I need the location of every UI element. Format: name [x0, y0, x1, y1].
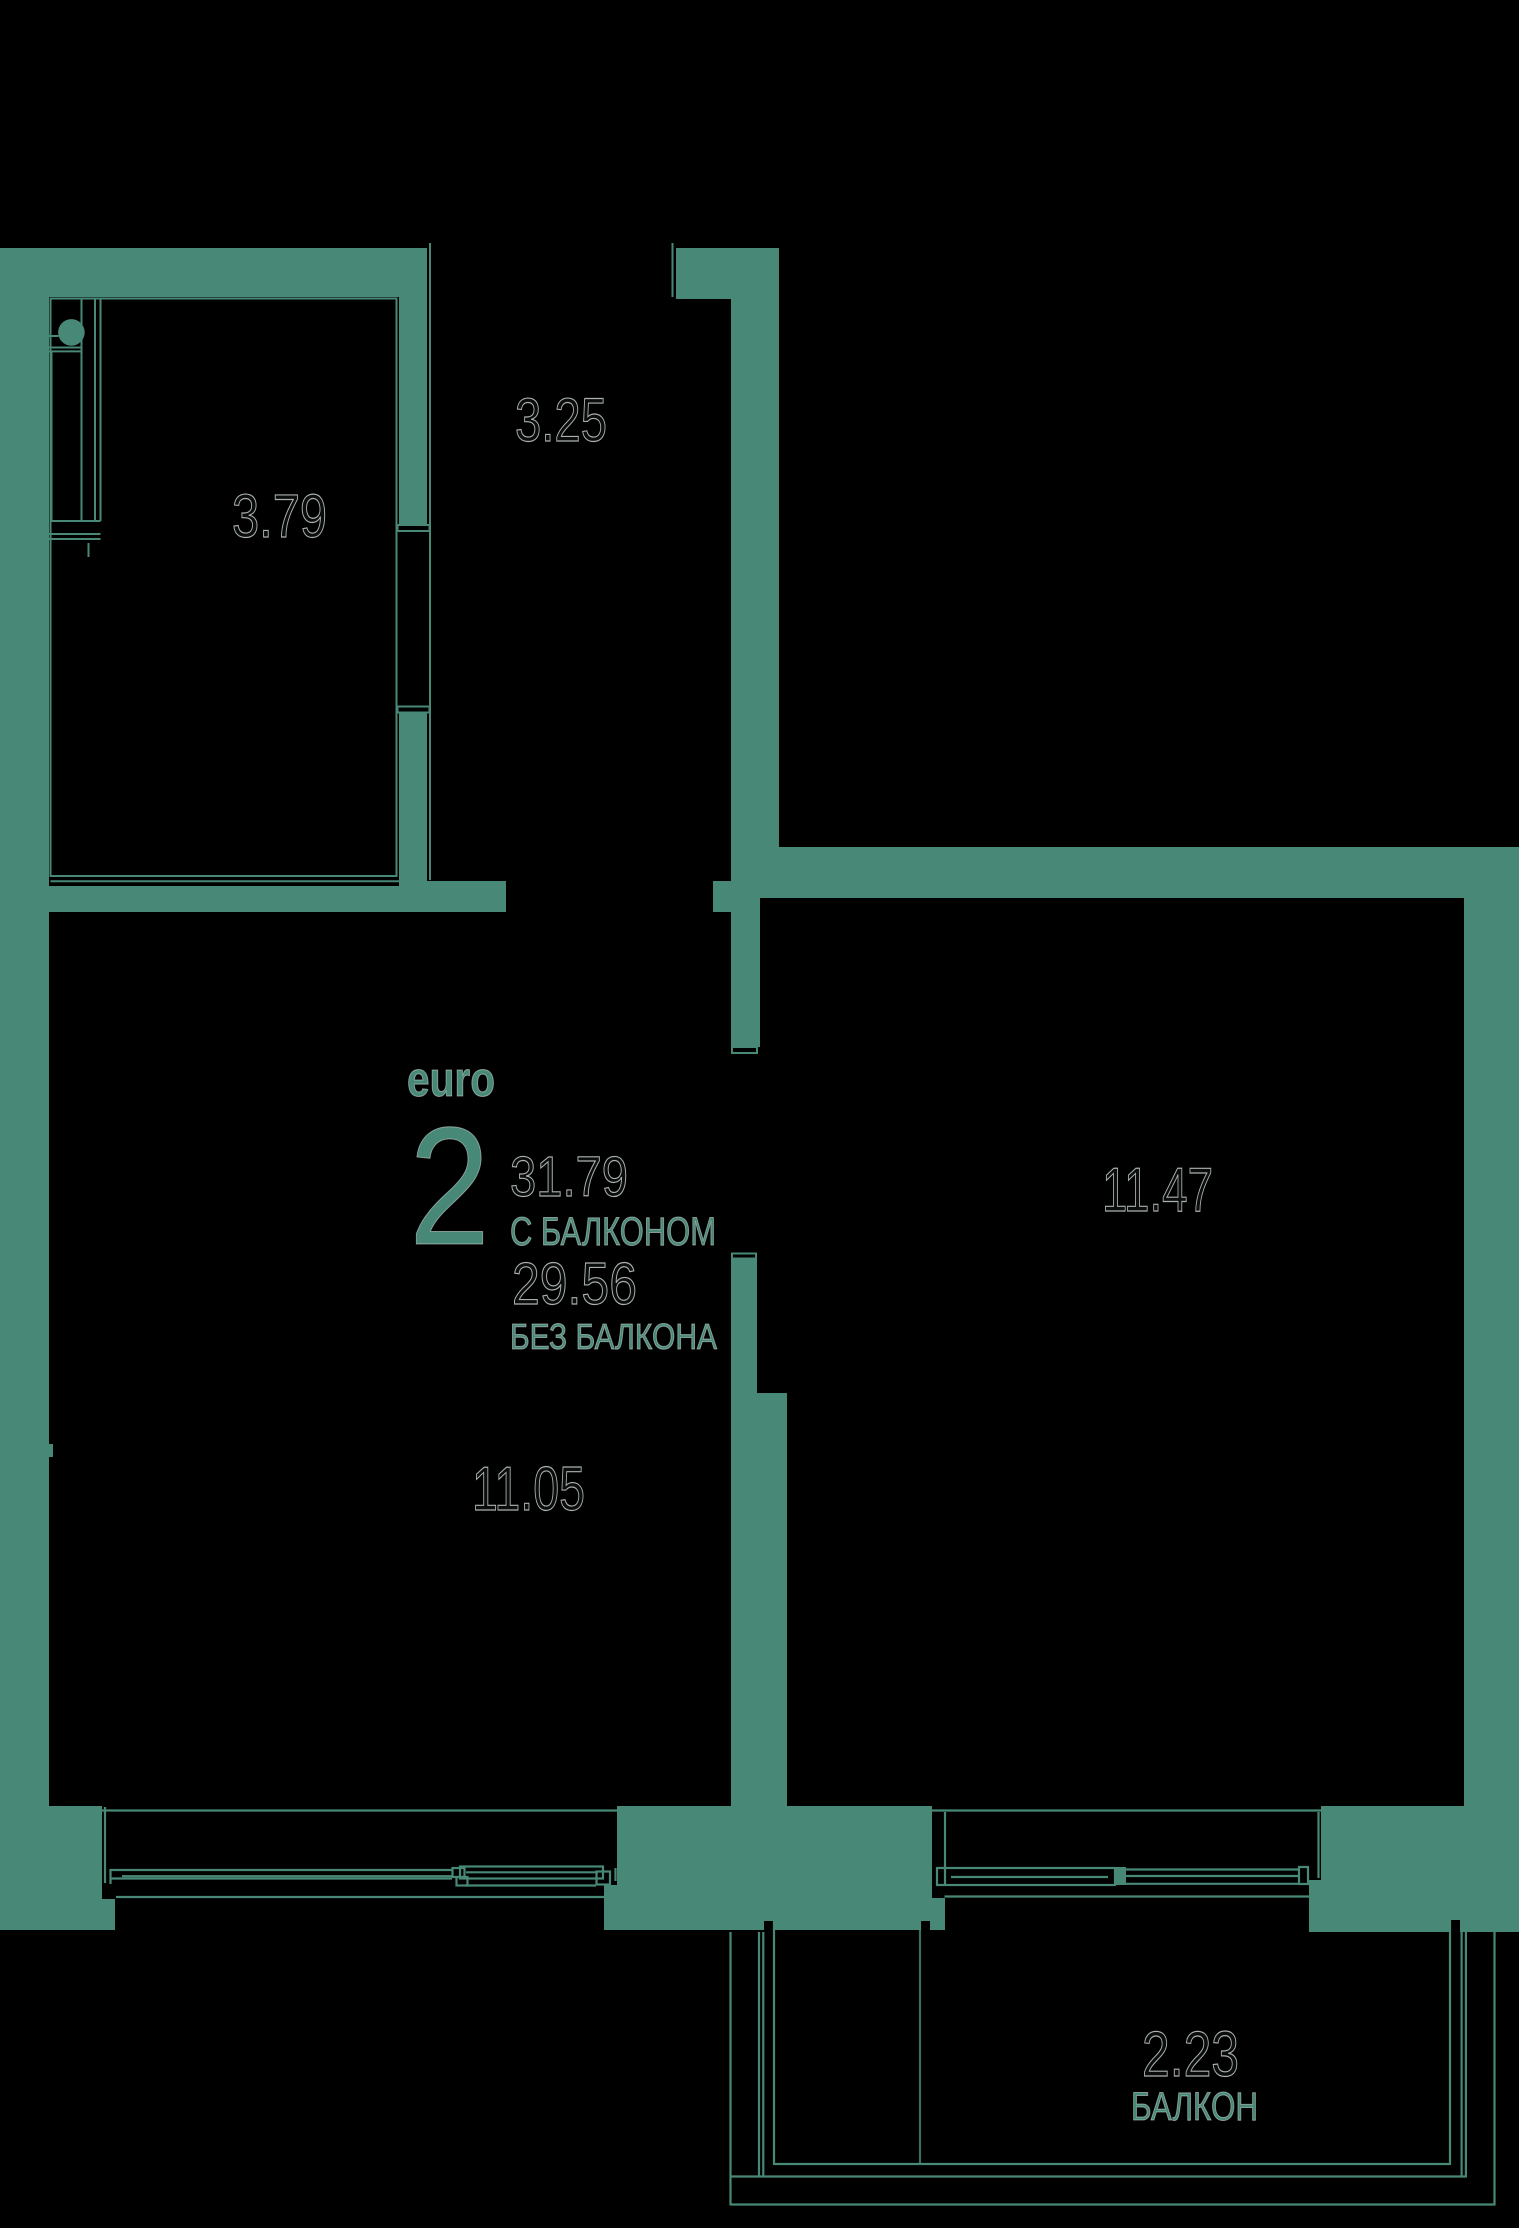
svg-text:БАЛКОН: БАЛКОН [1131, 2085, 1258, 2129]
svg-text:2: 2 [409, 1092, 490, 1280]
svg-text:11.05: 11.05 [472, 1455, 585, 1524]
svg-text:С БАЛКОНОМ: С БАЛКОНОМ [510, 1210, 716, 1254]
svg-text:29.56: 29.56 [512, 1251, 637, 1317]
svg-text:3.79: 3.79 [232, 482, 327, 550]
svg-text:БЕЗ БАЛКОНА: БЕЗ БАЛКОНА [510, 1316, 717, 1357]
svg-text:3.25: 3.25 [515, 386, 607, 454]
svg-text:31.79: 31.79 [510, 1145, 628, 1209]
svg-text:11.47: 11.47 [1102, 1156, 1213, 1225]
svg-text:2.23: 2.23 [1142, 2018, 1239, 2090]
